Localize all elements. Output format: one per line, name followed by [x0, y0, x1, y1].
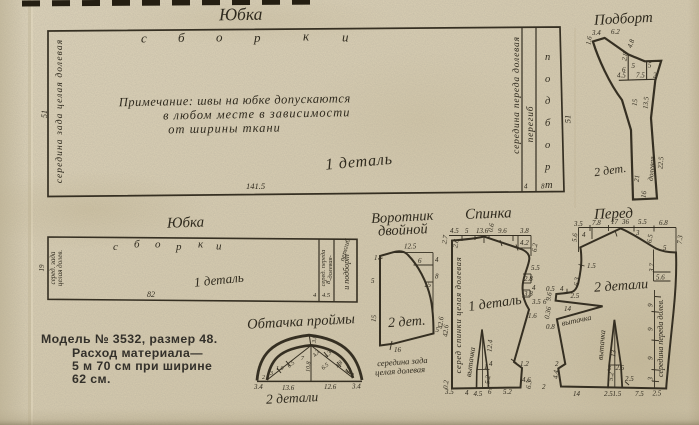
- svg-text:Подборт: Подборт: [593, 10, 654, 29]
- svg-text:4.2: 4.2: [520, 239, 529, 247]
- svg-text:к: к: [198, 239, 204, 251]
- svg-text:13: 13: [609, 349, 618, 357]
- svg-text:5: 5: [632, 62, 636, 70]
- svg-text:16: 16: [394, 346, 402, 354]
- svg-text:4: 4: [489, 360, 493, 368]
- svg-text:4: 4: [560, 285, 564, 293]
- svg-text:51: 51: [40, 110, 49, 118]
- svg-text:Спинка: Спинка: [465, 205, 512, 223]
- svg-text:т: т: [545, 180, 553, 191]
- svg-text:2.5: 2.5: [571, 292, 580, 300]
- svg-text:2.5: 2.5: [625, 375, 634, 383]
- svg-text:10.8: 10.8: [305, 361, 312, 372]
- svg-text:51: 51: [563, 115, 573, 124]
- svg-text:6.2: 6.2: [531, 242, 540, 252]
- svg-text:12.6: 12.6: [324, 383, 337, 391]
- svg-text:62 см.: 62 см.: [72, 372, 111, 386]
- svg-text:5.2: 5.2: [484, 374, 493, 384]
- svg-text:2: 2: [351, 373, 354, 379]
- svg-text:о: о: [155, 239, 161, 251]
- svg-text:с: с: [141, 31, 147, 46]
- svg-text:серед спинки целая долевая: серед спинки целая долевая: [453, 257, 463, 374]
- svg-text:6.3: 6.3: [573, 276, 582, 286]
- svg-text:141.5: 141.5: [246, 181, 265, 191]
- svg-text:4.5: 4.5: [450, 227, 459, 235]
- svg-text:21: 21: [633, 175, 642, 183]
- svg-text:42.6: 42.6: [441, 324, 450, 337]
- svg-text:12.5: 12.5: [404, 243, 417, 251]
- svg-text:7.5: 7.5: [636, 72, 645, 80]
- svg-text:9.6: 9.6: [498, 227, 507, 235]
- svg-text:о: о: [216, 30, 223, 45]
- svg-text:2 дет.: 2 дет.: [388, 314, 427, 332]
- svg-text:14: 14: [573, 390, 581, 398]
- svg-text:Юбка: Юбка: [218, 4, 263, 25]
- svg-text:1: 1: [374, 254, 378, 262]
- svg-text:Расход материала—: Расход материала—: [72, 346, 203, 360]
- svg-text:17: 17: [611, 218, 619, 226]
- svg-text:3.8: 3.8: [312, 335, 319, 344]
- svg-text:д: д: [545, 96, 550, 107]
- svg-text:1.6: 1.6: [528, 312, 537, 320]
- svg-text:6: 6: [418, 257, 422, 265]
- svg-text:3.7: 3.7: [647, 262, 656, 273]
- svg-text:о: о: [545, 140, 550, 151]
- svg-text:4: 4: [435, 256, 439, 264]
- svg-text:7.3: 7.3: [676, 234, 685, 244]
- svg-text:5.5: 5.5: [531, 264, 540, 272]
- svg-text:3: 3: [607, 365, 612, 373]
- svg-text:5: 5: [465, 227, 469, 235]
- svg-text:0.8: 0.8: [546, 323, 555, 331]
- svg-text:целая долев.: целая долев.: [56, 250, 64, 286]
- svg-text:6.2: 6.2: [611, 28, 620, 36]
- svg-text:15: 15: [424, 281, 432, 289]
- svg-text:1.2: 1.2: [520, 360, 529, 368]
- svg-text:середина зада целая долевая: середина зада целая долевая: [54, 39, 65, 183]
- svg-text:36: 36: [621, 218, 630, 226]
- svg-text:3.4: 3.4: [591, 29, 601, 37]
- svg-text:5.5: 5.5: [638, 218, 647, 226]
- svg-text:1.0: 1.0: [276, 366, 284, 372]
- svg-text:Юбка: Юбка: [166, 214, 205, 231]
- svg-text:2.8: 2.8: [524, 275, 533, 283]
- svg-text:п: п: [545, 52, 550, 63]
- svg-text:р: р: [175, 241, 182, 253]
- svg-text:4: 4: [465, 389, 469, 397]
- svg-text:1.5: 1.5: [613, 390, 622, 398]
- svg-text:б: б: [178, 30, 185, 45]
- svg-text:6.3: 6.3: [525, 379, 534, 389]
- svg-text:3.5: 3.5: [531, 298, 541, 306]
- svg-text:6: 6: [488, 388, 492, 396]
- svg-text:-долевая-: -долевая-: [327, 255, 334, 281]
- svg-text:0.5: 0.5: [546, 285, 555, 293]
- svg-text:2: 2: [542, 383, 546, 391]
- svg-text:5: 5: [648, 62, 652, 70]
- svg-text:5.2: 5.2: [503, 388, 512, 396]
- svg-text:4: 4: [524, 183, 528, 191]
- svg-text:2.5: 2.5: [616, 364, 625, 372]
- svg-text:7.5: 7.5: [635, 390, 644, 398]
- svg-text:3: 3: [635, 229, 640, 237]
- svg-text:3: 3: [269, 371, 273, 377]
- svg-text:22.5: 22.5: [656, 156, 665, 169]
- svg-text:1.5: 1.5: [587, 262, 596, 270]
- svg-text:середина переда долев.: середина переда долев.: [656, 299, 665, 377]
- svg-text:4.5: 4.5: [322, 292, 331, 299]
- svg-text:2.5: 2.5: [653, 390, 662, 398]
- svg-text:к: к: [303, 29, 310, 44]
- svg-text:15: 15: [370, 314, 379, 322]
- svg-text:б: б: [134, 239, 140, 251]
- svg-text:р: р: [544, 162, 550, 173]
- svg-text:перегиб: перегиб: [525, 105, 536, 142]
- svg-text:двойной: двойной: [378, 221, 429, 240]
- svg-text:5: 5: [371, 277, 375, 285]
- svg-text:5.6: 5.6: [656, 274, 665, 282]
- svg-text:1: 1: [484, 363, 488, 371]
- svg-text:от ширины ткани: от ширины ткани: [168, 120, 281, 136]
- svg-text:4.5: 4.5: [617, 72, 626, 80]
- svg-text:3.4: 3.4: [253, 383, 263, 391]
- svg-text:4: 4: [582, 231, 586, 239]
- svg-text:12.4: 12.4: [485, 339, 494, 352]
- svg-text:8: 8: [541, 183, 545, 191]
- svg-text:13.5: 13.5: [641, 96, 650, 109]
- svg-text:о: о: [545, 74, 550, 85]
- svg-text:3.8: 3.8: [519, 227, 529, 235]
- svg-text:82: 82: [147, 290, 155, 299]
- svg-text:2: 2: [653, 72, 657, 80]
- svg-text:14: 14: [564, 305, 572, 313]
- svg-text:с: с: [113, 241, 118, 253]
- svg-text:7.8: 7.8: [592, 219, 601, 227]
- svg-text:6: 6: [543, 298, 547, 306]
- svg-text:3.5: 3.5: [573, 220, 583, 228]
- svg-text:2: 2: [555, 360, 559, 368]
- svg-text:5.2: 5.2: [607, 371, 616, 381]
- svg-text:8: 8: [435, 273, 439, 281]
- svg-text:р: р: [253, 30, 261, 45]
- svg-text:4.5: 4.5: [474, 390, 483, 398]
- svg-text:16: 16: [640, 190, 649, 198]
- svg-text:5: 5: [663, 244, 667, 252]
- svg-text:0.2: 0.2: [442, 379, 451, 389]
- svg-text:3.4: 3.4: [351, 383, 361, 391]
- svg-text:и: и: [216, 241, 222, 253]
- svg-text:и: и: [342, 30, 349, 45]
- svg-text:2 детали: 2 детали: [266, 389, 319, 407]
- svg-text:середина переда долевая: середина переда долевая: [511, 36, 522, 154]
- svg-text:15: 15: [631, 98, 640, 106]
- svg-text:5 м 70 см при ширине: 5 м 70 см при ширине: [72, 359, 212, 373]
- svg-text:4.4: 4.4: [552, 369, 561, 379]
- svg-text:б: б: [545, 118, 551, 129]
- svg-text:5.6: 5.6: [571, 232, 580, 242]
- svg-text:3.8: 3.8: [523, 290, 533, 298]
- svg-text:19: 19: [38, 264, 46, 272]
- svg-text:Модель № 3532, размер 48.: Модель № 3532, размер 48.: [41, 332, 218, 346]
- svg-text:2: 2: [262, 375, 265, 381]
- svg-text:6.8: 6.8: [659, 219, 668, 227]
